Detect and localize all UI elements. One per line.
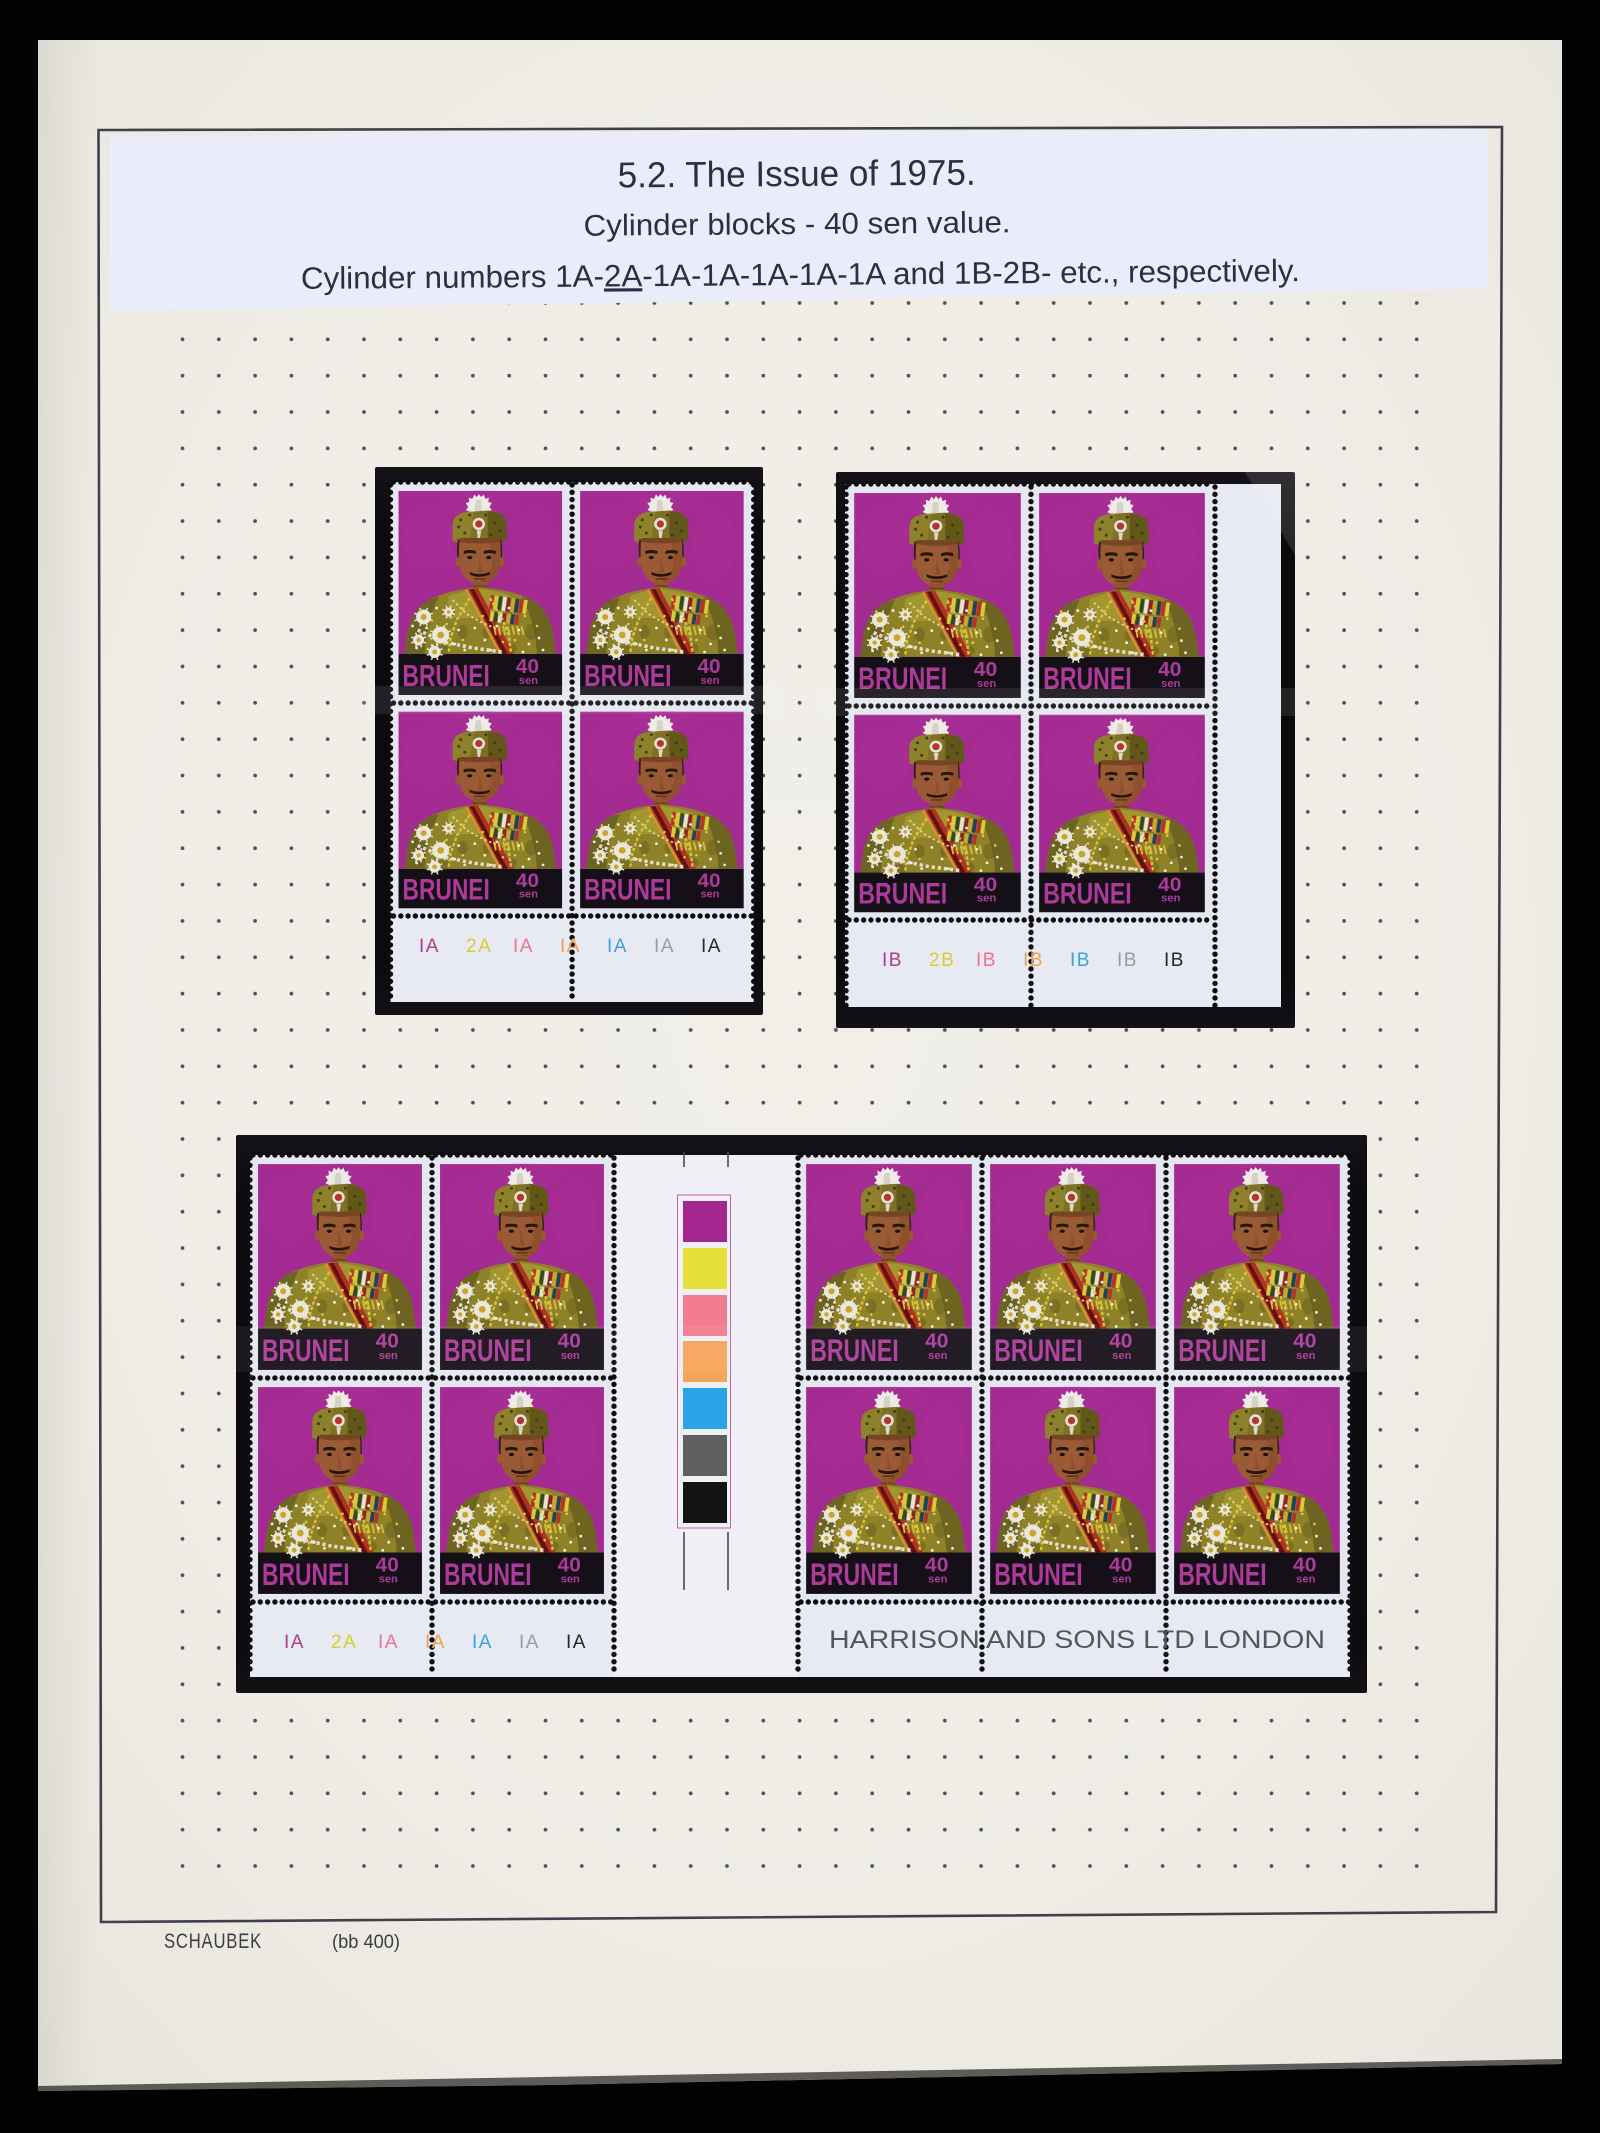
svg-text:IA: IA: [560, 936, 581, 957]
svg-text:2A: 2A: [466, 936, 492, 957]
svg-text:IA: IA: [472, 1632, 493, 1653]
svg-text:2A: 2A: [331, 1632, 357, 1653]
svg-text:IA: IA: [284, 1632, 305, 1653]
svg-text:IB: IB: [882, 950, 903, 971]
svg-text:IA: IA: [654, 936, 675, 957]
svg-text:SCHAUBEK: SCHAUBEK: [164, 1930, 262, 1953]
svg-text:IA: IA: [701, 936, 722, 957]
svg-text:2B: 2B: [929, 950, 955, 971]
svg-text:IA: IA: [425, 1632, 446, 1653]
svg-text:IB: IB: [1070, 950, 1091, 971]
svg-text:IA: IA: [419, 936, 440, 957]
svg-text:HARRISON AND SONS LTD LONDON: HARRISON AND SONS LTD LONDON: [829, 1626, 1325, 1654]
svg-text:(bb 400): (bb 400): [332, 1932, 400, 1953]
svg-text:IA: IA: [607, 936, 628, 957]
svg-text:IA: IA: [378, 1632, 399, 1653]
svg-text:IB: IB: [1117, 950, 1138, 971]
svg-text:IA: IA: [519, 1632, 540, 1653]
svg-text:IB: IB: [976, 950, 997, 971]
svg-text:IA: IA: [566, 1632, 587, 1653]
svg-text:Cylinder blocks - 40 sen value: Cylinder blocks - 40 sen value.: [583, 206, 1010, 242]
svg-text:IB: IB: [1023, 950, 1044, 971]
svg-text:IB: IB: [1164, 950, 1185, 971]
svg-text:IA: IA: [513, 936, 534, 957]
svg-text:5.2. The Issue of 1975.: 5.2. The Issue of 1975.: [617, 152, 975, 196]
